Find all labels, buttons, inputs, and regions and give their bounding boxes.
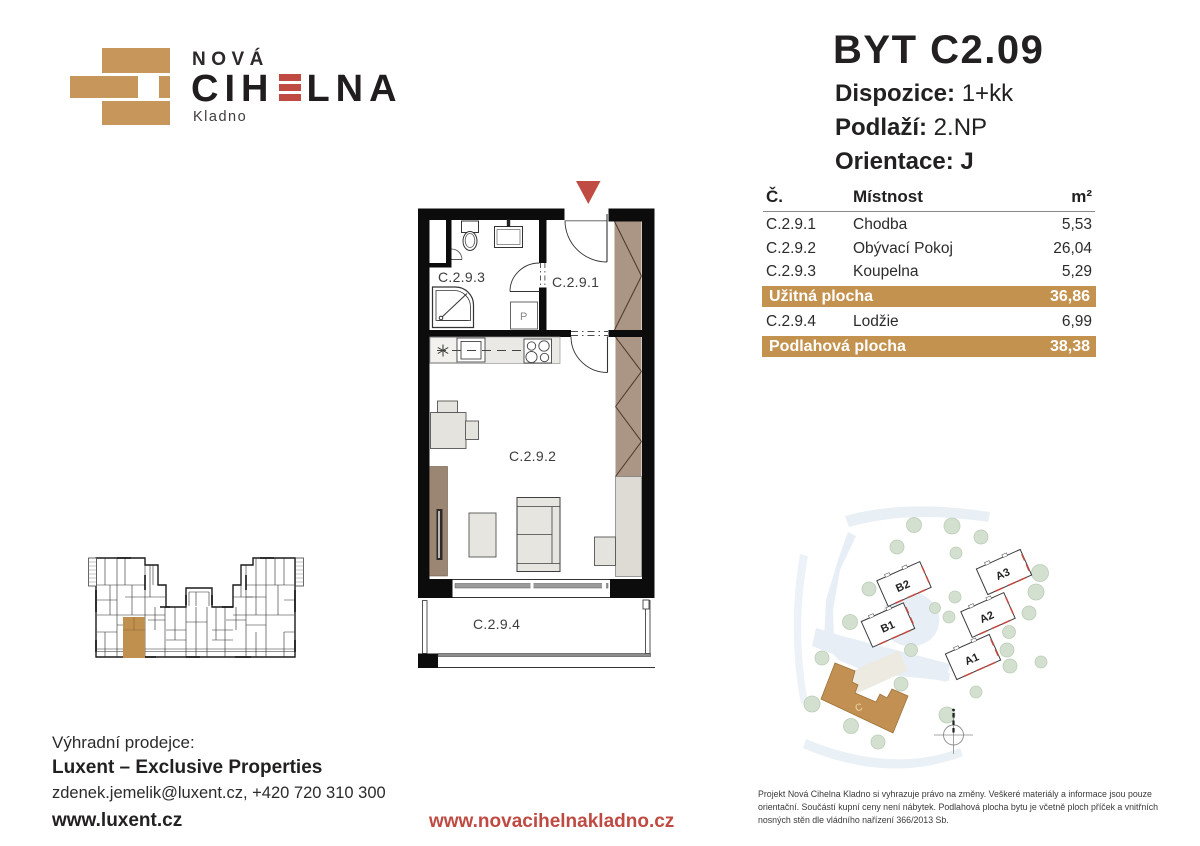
svg-text:P: P bbox=[520, 311, 527, 323]
svg-text:C.2.9.3: C.2.9.3 bbox=[438, 269, 485, 285]
svg-text:C.2.9.1: C.2.9.1 bbox=[552, 274, 599, 290]
svg-text:C.2.9.4: C.2.9.4 bbox=[473, 616, 520, 632]
svg-text:C.2.9.2: C.2.9.2 bbox=[509, 448, 556, 464]
